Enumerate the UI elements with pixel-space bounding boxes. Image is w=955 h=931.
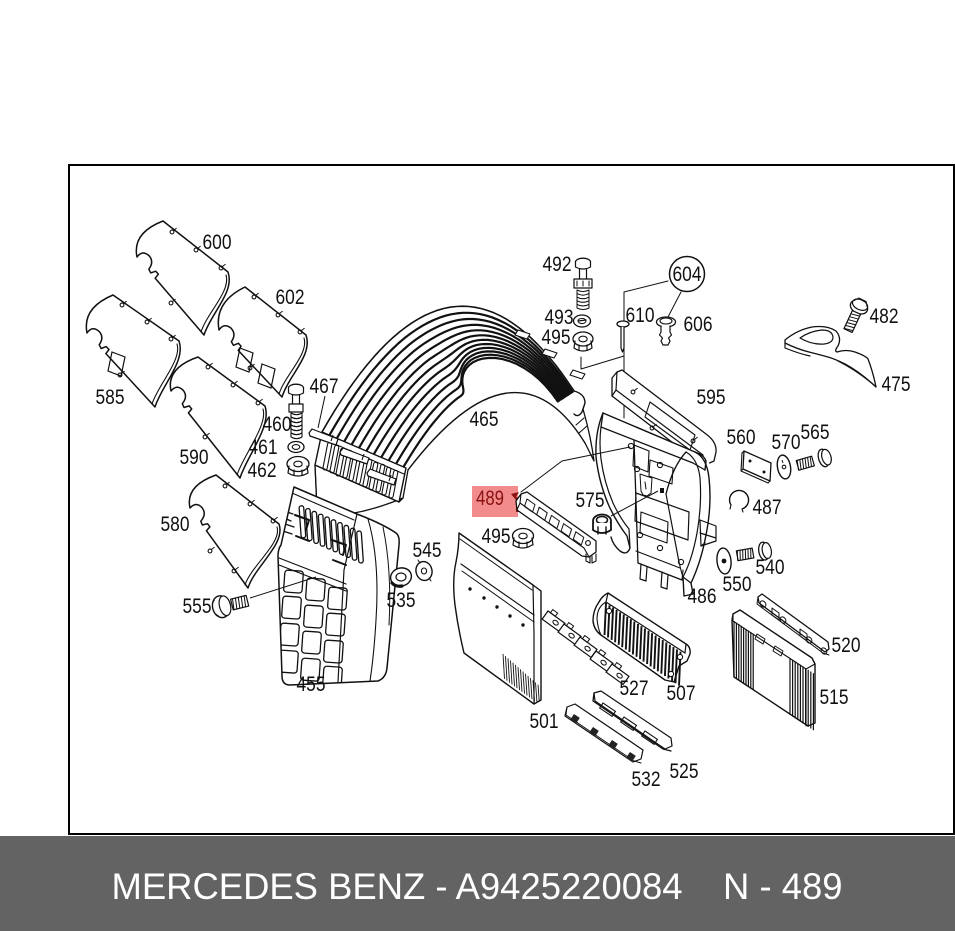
svg-text:560: 560 [727,426,756,449]
svg-text:MERCEDES BENZ - A9425220084: MERCEDES BENZ - A9425220084 N - 489 [112,866,843,907]
svg-text:550: 550 [723,573,752,596]
svg-text:460: 460 [263,413,292,436]
svg-text:486: 486 [688,585,717,608]
svg-text:565: 565 [801,421,830,444]
svg-text:515: 515 [820,686,849,709]
svg-text:602: 602 [276,286,305,309]
svg-text:475: 475 [882,373,911,396]
svg-text:540: 540 [756,556,785,579]
svg-text:461: 461 [249,436,278,459]
svg-text:590: 590 [180,446,209,469]
svg-text:467: 467 [310,375,339,398]
svg-text:462: 462 [248,459,277,482]
svg-text:482: 482 [870,305,899,328]
svg-text:532: 532 [632,768,661,791]
svg-text:570: 570 [772,431,801,454]
svg-text:604: 604 [673,263,702,286]
svg-text:527: 527 [620,677,649,700]
svg-text:492: 492 [543,253,572,276]
svg-text:585: 585 [96,386,125,409]
svg-text:555: 555 [183,595,212,618]
svg-text:520: 520 [832,634,861,657]
svg-text:489: 489 [476,487,504,510]
svg-text:580: 580 [161,513,190,536]
svg-text:501: 501 [530,710,559,733]
svg-text:600: 600 [203,231,232,254]
svg-text:495: 495 [482,525,511,548]
svg-text:455: 455 [297,673,326,696]
svg-text:465: 465 [470,408,499,431]
svg-text:535: 535 [387,589,416,612]
svg-text:495: 495 [542,326,571,349]
svg-text:610: 610 [626,304,655,327]
svg-text:595: 595 [697,386,726,409]
svg-text:575: 575 [576,489,605,512]
svg-text:487: 487 [753,496,782,519]
svg-text:545: 545 [413,539,442,562]
svg-text:606: 606 [684,313,713,336]
svg-text:507: 507 [667,682,696,705]
svg-text:525: 525 [670,760,699,783]
